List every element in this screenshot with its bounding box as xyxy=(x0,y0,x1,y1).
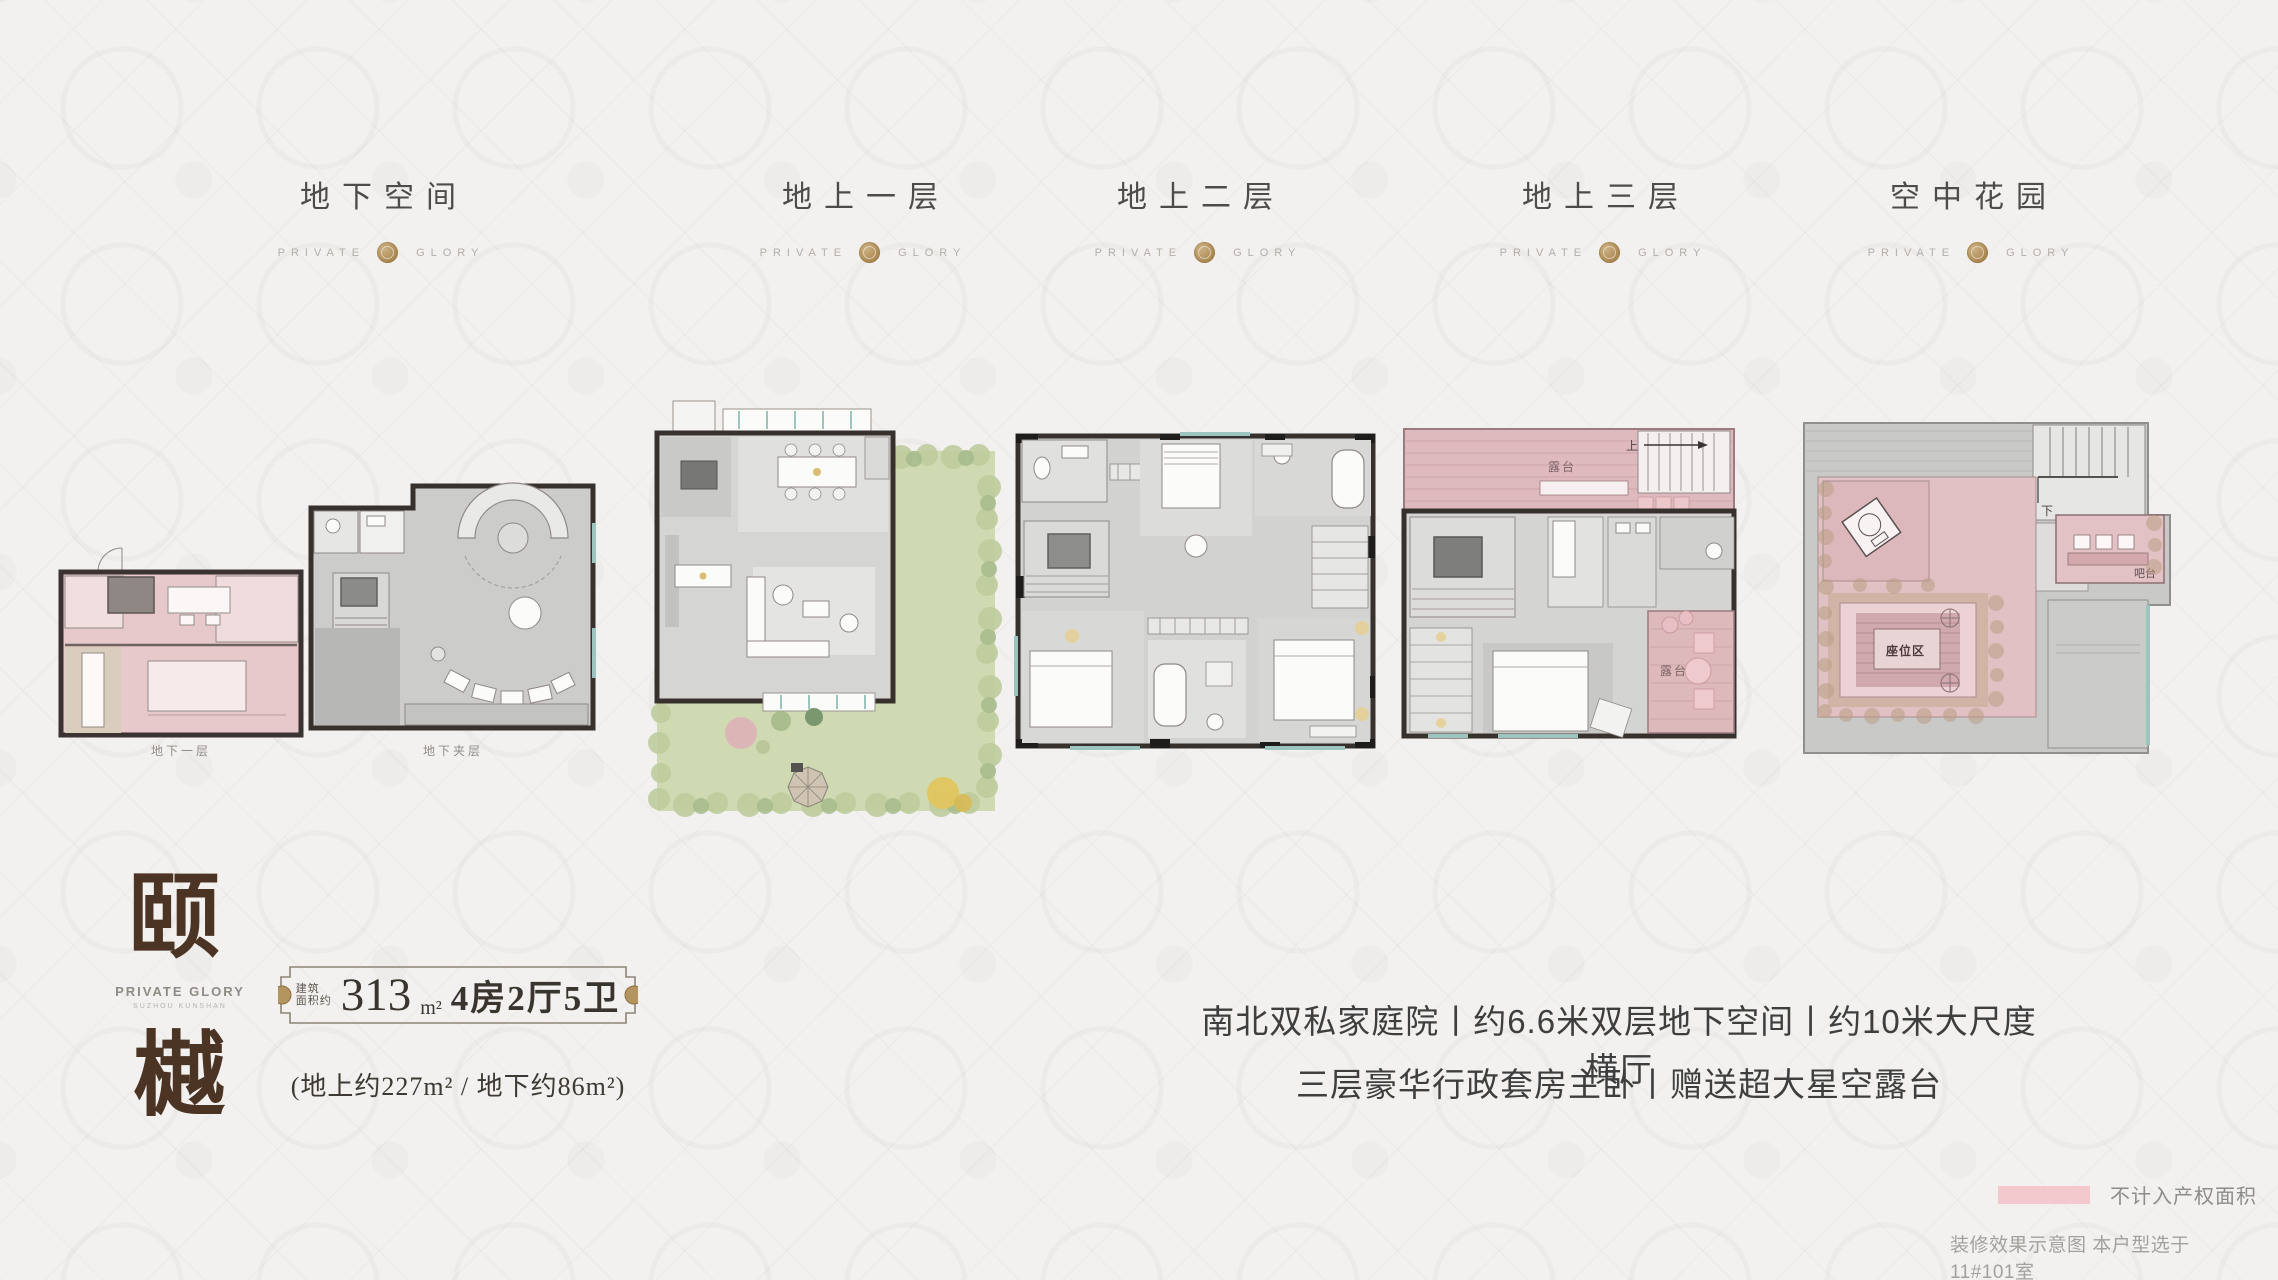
brand-glory-label: GLORY xyxy=(2000,247,2074,259)
wardrobe-room xyxy=(1410,628,1472,732)
section-title: 空中花园 xyxy=(1798,172,2138,216)
section-header-floor1: 地上一层 PRIVATE GLORY xyxy=(690,172,1030,263)
section-title: 地上二层 xyxy=(1025,172,1365,216)
plan-caption-basement-mezzanine: 地下夹层 xyxy=(303,742,603,759)
spec-badge: 建筑 面积约 313 m² 4房2厅5卫 xyxy=(278,964,638,1026)
section-title: 地下空间 xyxy=(208,172,548,216)
glory-seal-icon xyxy=(1599,242,1620,263)
floorplan-skygarden: 下 吧台 xyxy=(1798,415,2183,765)
spec-area-unit: m² xyxy=(420,997,442,1026)
project-name-char-top: 颐 xyxy=(128,872,220,964)
terrace-side: 露台 xyxy=(1648,611,1734,733)
spec-badge-content: 建筑 面积约 313 m² 4房2厅5卫 xyxy=(278,964,638,1026)
brand-row: PRIVATE GLORY xyxy=(1798,242,2138,263)
section-header-basement: 地下空间 PRIVATE GLORY xyxy=(208,172,548,263)
brand-glory-label: GLORY xyxy=(410,247,484,259)
section-header-skygarden: 空中花园 PRIVATE GLORY xyxy=(1798,172,2138,263)
glory-seal-icon xyxy=(377,242,398,263)
brand-row: PRIVATE GLORY xyxy=(208,242,548,263)
stairs-up-label: 上 xyxy=(1626,439,1638,453)
spec-area-value: 313 xyxy=(341,972,412,1019)
project-brand-line: PRIVATE GLORY xyxy=(100,984,260,999)
disclaimer-text: 装修效果示意图 本户型选于11#101室 xyxy=(1950,1230,2226,1280)
brand-glory-label: GLORY xyxy=(1227,247,1301,259)
area-note: (地上约227m² / 地下约86m²) xyxy=(278,1066,638,1103)
skygarden-stairs: 下 xyxy=(2033,425,2145,520)
floorplan-basement-level1 xyxy=(56,545,306,745)
terrace-top-label: 露台 xyxy=(1548,459,1576,474)
brand-private-label: PRIVATE xyxy=(754,247,847,259)
seating-area: 座位区 xyxy=(1828,593,1988,707)
brand-private-label: PRIVATE xyxy=(1089,247,1182,259)
floorplan-floor2 xyxy=(1010,426,1390,768)
project-name-char-bottom: 樾 xyxy=(133,1030,225,1122)
legend-row: 不计入产权面积 xyxy=(1998,1180,2257,1209)
poster-canvas: 地下空间 PRIVATE GLORY 地上一层 PRIVATE GLORY 地上… xyxy=(0,0,2278,1280)
section-header-floor3: 地上三层 PRIVATE GLORY xyxy=(1430,172,1770,263)
floorplan-basement-mezzanine xyxy=(303,478,603,740)
tagline-line2: 三层豪华行政套房主卧丨赠送超大星空露台 xyxy=(1188,1058,2050,1106)
spec-prefix-top: 建筑 xyxy=(296,983,332,995)
brand-glory-label: GLORY xyxy=(1632,247,1706,259)
terrace-side-label: 露台 xyxy=(1660,663,1688,678)
section-title: 地上一层 xyxy=(690,172,1030,216)
spec-prefix-bottom: 面积约 xyxy=(296,995,332,1007)
floorplan-floor3: 上 露台 xyxy=(1398,423,1746,768)
section-title: 地上三层 xyxy=(1430,172,1770,216)
brand-row: PRIVATE GLORY xyxy=(690,242,1030,263)
spec-rooms: 4房2厅5卫 xyxy=(451,970,621,1021)
spec-prefix: 建筑 面积约 xyxy=(296,983,332,1007)
brand-private-label: PRIVATE xyxy=(272,247,365,259)
legend-label: 不计入产权面积 xyxy=(2110,1180,2257,1209)
brand-private-label: PRIVATE xyxy=(1862,247,1955,259)
glory-seal-icon xyxy=(859,242,880,263)
section-header-floor2: 地上二层 PRIVATE GLORY xyxy=(1025,172,1365,263)
brand-glory-label: GLORY xyxy=(892,247,966,259)
glory-seal-icon xyxy=(1967,242,1988,263)
glory-seal-icon xyxy=(1194,242,1215,263)
seating-label: 座位区 xyxy=(1885,643,1925,658)
floorplan-floor1-garden xyxy=(643,395,1005,825)
project-brand-subline: SUZHOU KUNSHAN xyxy=(100,1003,260,1010)
brand-row: PRIVATE GLORY xyxy=(1025,242,1365,263)
wardrobe-strip xyxy=(1312,526,1368,608)
brand-private-label: PRIVATE xyxy=(1494,247,1587,259)
brand-row: PRIVATE GLORY xyxy=(1430,242,1770,263)
plan-caption-basement1: 地下一层 xyxy=(56,742,306,759)
legend-pink-swatch xyxy=(1998,1186,2090,1204)
stairs-down-label: 下 xyxy=(2041,504,2053,518)
